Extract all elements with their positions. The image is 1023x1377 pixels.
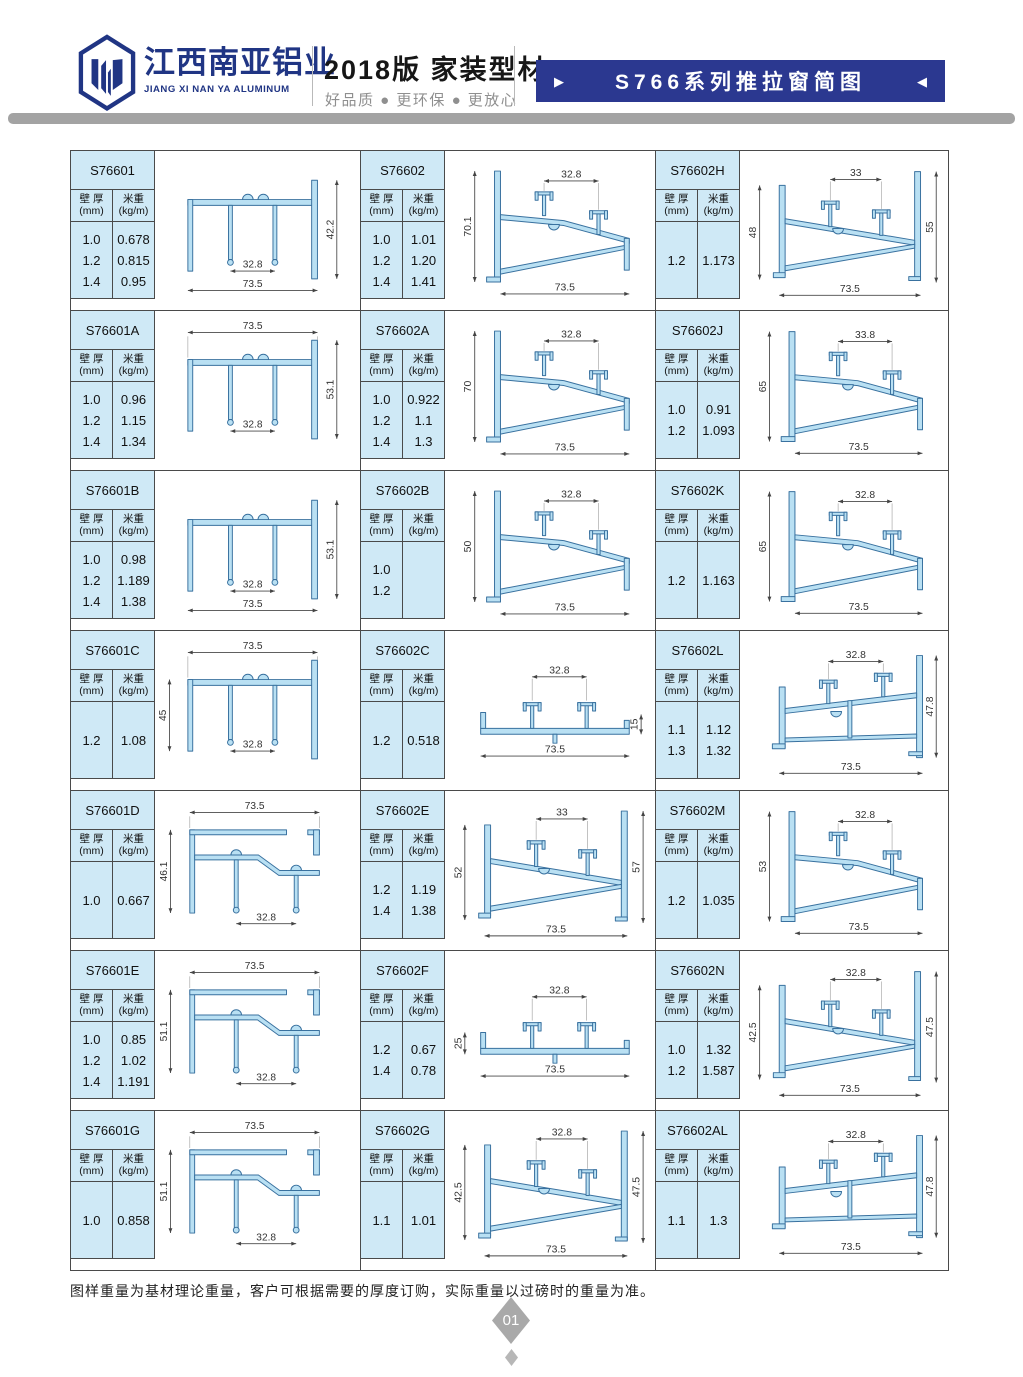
thickness-value: 1.4 (71, 271, 112, 292)
header-divider (514, 46, 515, 106)
thickness-values: 1.01.21.4 (361, 382, 402, 458)
spec-table-header: 壁 厚(mm) 米重(kg/m) (71, 190, 154, 222)
weight-value: 1.02 (113, 1050, 154, 1071)
spec-table: S76601C 壁 厚(mm) 米重(kg/m) 1.2 1.08 (71, 631, 155, 779)
thickness-values: 1.01.2 (656, 382, 697, 458)
weight-column-label: 米重(kg/m) (402, 350, 444, 381)
thickness-value: 1.2 (361, 879, 402, 900)
svg-text:73.5: 73.5 (555, 282, 575, 293)
profile-cell: S76602H 壁 厚(mm) 米重(kg/m) 1.2 1.173 33485… (656, 151, 949, 311)
svg-text:55: 55 (925, 221, 936, 233)
svg-text:32.8: 32.8 (243, 260, 263, 271)
weight-value: 1.38 (113, 591, 154, 612)
spec-table: S76602K 壁 厚(mm) 米重(kg/m) 1.2 1.163 (656, 471, 740, 619)
svg-text:73.5: 73.5 (555, 442, 575, 453)
profile-drawing: 32.87073.5 (445, 311, 655, 470)
profile-code: S76602AL (656, 1111, 739, 1150)
brand-block: 江西南亚铝业 JIANG XI NAN YA ALUMINUM (144, 47, 336, 95)
svg-text:73.5: 73.5 (245, 961, 265, 972)
svg-text:73.5: 73.5 (243, 599, 263, 610)
weight-column-label: 米重(kg/m) (697, 670, 739, 701)
weight-column-label: 米重(kg/m) (112, 990, 154, 1021)
spec-table: S76601G 壁 厚(mm) 米重(kg/m) 1.0 0.858 (71, 1111, 155, 1259)
spec-table: S76601 壁 厚(mm) 米重(kg/m) 1.01.21.4 0.6780… (71, 151, 155, 299)
thickness-value: 1.0 (361, 389, 402, 410)
thickness-value: 1.4 (71, 591, 112, 612)
spec-table-body: 1.01.21.4 0.851.021.191 (71, 1022, 154, 1098)
weight-column-label: 米重(kg/m) (697, 830, 739, 861)
thickness-value: 1.2 (71, 1050, 112, 1071)
spec-table-header: 壁 厚(mm) 米重(kg/m) (361, 350, 444, 382)
thickness-value: 1.3 (656, 740, 697, 761)
thickness-value: 1.0 (656, 399, 697, 420)
thickness-value: 1.2 (656, 250, 697, 271)
weight-values: 1.173 (697, 222, 739, 298)
svg-text:32.8: 32.8 (855, 490, 875, 501)
svg-text:53: 53 (758, 861, 769, 873)
weight-value: 0.78 (403, 1060, 444, 1081)
spec-table-body: 1.01.21.4 0.6780.8150.95 (71, 222, 154, 298)
spec-table: S76602J 壁 厚(mm) 米重(kg/m) 1.01.2 0.911.09… (656, 311, 740, 459)
spec-table-body: 1.1 1.01 (361, 1182, 444, 1258)
spec-table-body: 1.2 1.163 (656, 542, 739, 618)
thickness-column-label: 壁 厚(mm) (656, 350, 697, 381)
weight-column-label: 米重(kg/m) (112, 190, 154, 221)
svg-text:32.8: 32.8 (549, 985, 569, 996)
thickness-column-label: 壁 厚(mm) (361, 670, 402, 701)
thickness-values: 1.2 (656, 542, 697, 618)
profile-code: S76602L (656, 631, 739, 670)
svg-text:25: 25 (453, 1037, 464, 1049)
weight-value: 0.815 (113, 250, 154, 271)
thickness-value: 1.2 (71, 250, 112, 271)
profile-code: S76602K (656, 471, 739, 510)
weight-column-label: 米重(kg/m) (402, 830, 444, 861)
weight-value: 1.191 (113, 1071, 154, 1092)
profile-drawing: 73.546.132.8 (155, 791, 360, 950)
thickness-column-label: 壁 厚(mm) (361, 830, 402, 861)
spec-table-body: 1.01.2 (361, 542, 444, 618)
spec-table: S76601D 壁 厚(mm) 米重(kg/m) 1.0 0.667 (71, 791, 155, 939)
thickness-values: 1.2 (361, 702, 402, 778)
weight-value: 1.093 (698, 420, 739, 441)
profile-code: S76602C (361, 631, 444, 670)
profile-cell: S76602AL 壁 厚(mm) 米重(kg/m) 1.1 1.3 32.847… (656, 1111, 949, 1271)
spec-table: S76602H 壁 厚(mm) 米重(kg/m) 1.2 1.173 (656, 151, 740, 299)
weight-values: 0.6780.8150.95 (112, 222, 154, 298)
thickness-value: 1.2 (361, 580, 402, 601)
weight-value: 1.01 (403, 1210, 444, 1231)
svg-text:47.8: 47.8 (925, 1176, 936, 1196)
svg-text:73.5: 73.5 (849, 922, 869, 933)
weight-values: 1.035 (697, 862, 739, 938)
thickness-column-label: 壁 厚(mm) (71, 190, 112, 221)
thickness-value: 1.0 (71, 549, 112, 570)
profile-code: S76601C (71, 631, 154, 670)
spec-table-body: 1.2 1.173 (656, 222, 739, 298)
svg-text:57: 57 (632, 861, 643, 873)
thickness-value: 1.1 (361, 1210, 402, 1231)
profile-cell: S76601D 壁 厚(mm) 米重(kg/m) 1.0 0.667 73.54… (71, 791, 361, 951)
weight-value: 1.32 (698, 1039, 739, 1060)
profile-drawing: 32.842.547.573.5 (740, 951, 948, 1110)
profile-drawing: 32.873.553.1 (155, 471, 360, 630)
svg-text:46.1: 46.1 (159, 861, 170, 881)
svg-text:73.5: 73.5 (245, 1121, 265, 1132)
thickness-values: 1.01.21.4 (71, 222, 112, 298)
thickness-value: 1.0 (656, 1039, 697, 1060)
thickness-column-label: 壁 厚(mm) (656, 990, 697, 1021)
thickness-value: 1.4 (71, 1071, 112, 1092)
spec-table-header: 壁 厚(mm) 米重(kg/m) (361, 190, 444, 222)
svg-text:33.8: 33.8 (855, 330, 875, 341)
svg-text:51.1: 51.1 (159, 1021, 170, 1041)
svg-text:32.8: 32.8 (855, 810, 875, 821)
thickness-column-label: 壁 厚(mm) (71, 990, 112, 1021)
profile-drawing: 73.551.132.8 (155, 951, 360, 1110)
profile-drawing: 32.85373.5 (740, 791, 948, 950)
thickness-value: 1.4 (71, 431, 112, 452)
profile-grid: S76601 壁 厚(mm) 米重(kg/m) 1.01.21.4 0.6780… (70, 150, 949, 1271)
header-separator-bar (8, 113, 1015, 124)
thickness-values: 1.01.2 (361, 542, 402, 618)
profile-cell: S76602E 壁 厚(mm) 米重(kg/m) 1.21.4 1.191.38… (361, 791, 656, 951)
profile-drawing: 32.85073.5 (445, 471, 655, 630)
profile-cell: S76601G 壁 厚(mm) 米重(kg/m) 1.0 0.858 73.55… (71, 1111, 361, 1271)
spec-table-header: 壁 厚(mm) 米重(kg/m) (656, 670, 739, 702)
spec-table-header: 壁 厚(mm) 米重(kg/m) (71, 830, 154, 862)
thickness-values: 1.1 (656, 1182, 697, 1258)
svg-text:73.5: 73.5 (546, 924, 566, 935)
thickness-value: 1.2 (71, 410, 112, 431)
svg-text:32.8: 32.8 (256, 912, 276, 923)
thickness-column-label: 壁 厚(mm) (71, 1150, 112, 1181)
profile-code: S76601B (71, 471, 154, 510)
thickness-value: 1.2 (71, 570, 112, 591)
weight-value (403, 559, 444, 580)
profile-drawing: 32.82573.5 (445, 951, 655, 1110)
svg-text:73.5: 73.5 (545, 1065, 565, 1076)
spec-table-body: 1.01.21.4 0.9221.11.3 (361, 382, 444, 458)
svg-text:73.5: 73.5 (546, 1244, 566, 1255)
spec-table-body: 1.21.4 1.191.38 (361, 862, 444, 938)
thickness-values: 1.0 (71, 862, 112, 938)
svg-text:73.5: 73.5 (841, 1242, 861, 1253)
spec-table: S76602L 壁 厚(mm) 米重(kg/m) 1.11.3 1.121.32 (656, 631, 740, 779)
thickness-value: 1.2 (656, 420, 697, 441)
spec-table: S76602M 壁 厚(mm) 米重(kg/m) 1.2 1.035 (656, 791, 740, 939)
svg-text:48: 48 (748, 226, 759, 238)
profile-cell: S76602C 壁 厚(mm) 米重(kg/m) 1.2 0.518 32.81… (361, 631, 656, 791)
profile-code: S76602H (656, 151, 739, 190)
series-banner: ▶ S766系列推拉窗简图 ◀ (536, 60, 945, 102)
weight-column-label: 米重(kg/m) (697, 350, 739, 381)
svg-text:45: 45 (158, 709, 169, 721)
spec-table: S76602 壁 厚(mm) 米重(kg/m) 1.01.21.4 1.011.… (361, 151, 445, 299)
thickness-value: 1.2 (361, 250, 402, 271)
thickness-column-label: 壁 厚(mm) (656, 510, 697, 541)
thickness-value: 1.2 (71, 730, 112, 751)
brand-name-en: JIANG XI NAN YA ALUMINUM (144, 84, 336, 95)
weight-column-label: 米重(kg/m) (402, 1150, 444, 1181)
profile-drawing: 32.81573.5 (445, 631, 655, 790)
spec-table: S76602B 壁 厚(mm) 米重(kg/m) 1.01.2 (361, 471, 445, 619)
spec-table: S76601B 壁 厚(mm) 米重(kg/m) 1.01.21.4 0.981… (71, 471, 155, 619)
svg-text:73.5: 73.5 (545, 745, 565, 756)
profile-cell: S76601B 壁 厚(mm) 米重(kg/m) 1.01.21.4 0.981… (71, 471, 361, 631)
weight-values: 0.667 (112, 862, 154, 938)
weight-value: 1.189 (113, 570, 154, 591)
thickness-column-label: 壁 厚(mm) (71, 830, 112, 861)
weight-value: 1.20 (403, 250, 444, 271)
profile-cell: S76602B 壁 厚(mm) 米重(kg/m) 1.01.2 32.85073… (361, 471, 656, 631)
spec-table-body: 1.1 1.3 (656, 1182, 739, 1258)
profile-cell: S76601E 壁 厚(mm) 米重(kg/m) 1.01.21.4 0.851… (71, 951, 361, 1111)
thickness-value: 1.0 (361, 559, 402, 580)
banner-left-arrow-icon: ▶ (554, 75, 564, 88)
thickness-values: 1.2 (71, 702, 112, 778)
thickness-value: 1.4 (361, 900, 402, 921)
spec-table-header: 壁 厚(mm) 米重(kg/m) (71, 990, 154, 1022)
thickness-value: 1.0 (71, 890, 112, 911)
thickness-column-label: 壁 厚(mm) (71, 350, 112, 381)
svg-text:32.8: 32.8 (846, 1130, 866, 1141)
profile-cell: S76602K 壁 厚(mm) 米重(kg/m) 1.2 1.163 32.86… (656, 471, 949, 631)
weight-column-label: 米重(kg/m) (697, 190, 739, 221)
spec-table-body: 1.01.21.4 0.981.1891.38 (71, 542, 154, 618)
logo-hexagon-icon (78, 34, 136, 111)
profile-code: S76601 (71, 151, 154, 190)
weight-value: 1.32 (698, 740, 739, 761)
weight-value: 0.667 (113, 890, 154, 911)
brand-name-cn: 江西南亚铝业 (144, 47, 336, 78)
weight-value: 0.922 (403, 389, 444, 410)
profile-cell: S76602F 壁 厚(mm) 米重(kg/m) 1.21.4 0.670.78… (361, 951, 656, 1111)
profile-code: S76602N (656, 951, 739, 990)
svg-text:70.1: 70.1 (463, 216, 474, 236)
spec-table-body: 1.11.3 1.121.32 (656, 702, 739, 778)
spec-table-header: 壁 厚(mm) 米重(kg/m) (71, 510, 154, 542)
weight-values: 0.961.151.34 (112, 382, 154, 458)
page-number-ornament (505, 1349, 518, 1366)
profile-cell: S76602A 壁 厚(mm) 米重(kg/m) 1.01.21.4 0.922… (361, 311, 656, 471)
thickness-column-label: 壁 厚(mm) (656, 670, 697, 701)
profile-cell: S76602J 壁 厚(mm) 米重(kg/m) 1.01.2 0.911.09… (656, 311, 949, 471)
profile-code: S76602J (656, 311, 739, 350)
thickness-values: 1.0 (71, 1182, 112, 1258)
svg-text:73.5: 73.5 (840, 284, 860, 295)
weight-value: 1.41 (403, 271, 444, 292)
profile-cell: S76602L 壁 厚(mm) 米重(kg/m) 1.11.3 1.121.32… (656, 631, 949, 791)
spec-table-body: 1.2 0.518 (361, 702, 444, 778)
spec-table-header: 壁 厚(mm) 米重(kg/m) (656, 990, 739, 1022)
spec-table-body: 1.01.2 1.321.587 (656, 1022, 739, 1098)
thickness-column-label: 壁 厚(mm) (656, 1150, 697, 1181)
weight-column-label: 米重(kg/m) (112, 350, 154, 381)
svg-text:52: 52 (453, 866, 464, 878)
thickness-value: 1.4 (361, 271, 402, 292)
weight-values: 1.011.201.41 (402, 222, 444, 298)
series-title: S766系列推拉窗简图 (615, 66, 866, 96)
weight-value: 1.38 (403, 900, 444, 921)
svg-text:47.5: 47.5 (632, 1177, 643, 1197)
svg-text:47.5: 47.5 (925, 1017, 936, 1037)
profile-code: S76601G (71, 1111, 154, 1150)
svg-text:32.8: 32.8 (561, 170, 581, 181)
weight-value: 0.678 (113, 229, 154, 250)
thickness-column-label: 壁 厚(mm) (656, 190, 697, 221)
svg-text:42.2: 42.2 (325, 219, 336, 239)
weight-values: 1.3 (697, 1182, 739, 1258)
profile-code: S76601D (71, 791, 154, 830)
svg-text:73.5: 73.5 (849, 442, 869, 453)
thickness-values: 1.1 (361, 1182, 402, 1258)
svg-text:32.8: 32.8 (846, 650, 866, 661)
spec-table-body: 1.21.4 0.670.78 (361, 1022, 444, 1098)
weight-value: 1.12 (698, 719, 739, 740)
weight-value: 1.19 (403, 879, 444, 900)
weight-value: 0.518 (403, 730, 444, 751)
weight-value: 1.035 (698, 890, 739, 911)
svg-text:53.1: 53.1 (325, 539, 336, 559)
weight-value: 0.91 (698, 399, 739, 420)
profile-cell: S76601 壁 厚(mm) 米重(kg/m) 1.01.21.4 0.6780… (71, 151, 361, 311)
profile-code: S76601E (71, 951, 154, 990)
thickness-values: 1.01.21.4 (71, 382, 112, 458)
spec-table-header: 壁 厚(mm) 米重(kg/m) (656, 1150, 739, 1182)
profile-drawing: 33.86573.5 (740, 311, 948, 470)
svg-text:47.8: 47.8 (925, 696, 936, 716)
spec-table: S76602A 壁 厚(mm) 米重(kg/m) 1.01.21.4 0.922… (361, 311, 445, 459)
spec-table-header: 壁 厚(mm) 米重(kg/m) (71, 670, 154, 702)
weight-values: 0.670.78 (402, 1022, 444, 1098)
thickness-values: 1.01.21.4 (361, 222, 402, 298)
spec-table-body: 1.2 1.08 (71, 702, 154, 778)
thickness-value: 1.2 (361, 1039, 402, 1060)
thickness-value: 1.1 (656, 1210, 697, 1231)
thickness-values: 1.01.21.4 (71, 542, 112, 618)
spec-table: S76602F 壁 厚(mm) 米重(kg/m) 1.21.4 0.670.78 (361, 951, 445, 1099)
thickness-values: 1.21.4 (361, 1022, 402, 1098)
weight-column-label: 米重(kg/m) (112, 510, 154, 541)
weight-value: 0.96 (113, 389, 154, 410)
spec-table-body: 1.0 0.667 (71, 862, 154, 938)
svg-text:51.1: 51.1 (159, 1181, 170, 1201)
weight-value: 1.3 (403, 431, 444, 452)
spec-table-header: 壁 厚(mm) 米重(kg/m) (361, 510, 444, 542)
svg-text:42.5: 42.5 (748, 1022, 759, 1042)
weight-value: 1.173 (698, 250, 739, 271)
thickness-value: 1.2 (656, 890, 697, 911)
profile-code: S76601A (71, 311, 154, 350)
profile-drawing: 32.842.547.573.5 (445, 1111, 655, 1270)
thickness-values: 1.2 (656, 222, 697, 298)
svg-text:32.8: 32.8 (243, 580, 263, 591)
profile-drawing: 32.847.873.5 (740, 631, 948, 790)
svg-text:32.8: 32.8 (256, 1232, 276, 1243)
weight-value: 0.98 (113, 549, 154, 570)
thickness-value: 1.4 (361, 1060, 402, 1081)
thickness-column-label: 壁 厚(mm) (361, 510, 402, 541)
spec-table-header: 壁 厚(mm) 米重(kg/m) (361, 670, 444, 702)
weight-column-label: 米重(kg/m) (112, 670, 154, 701)
spec-table-header: 壁 厚(mm) 米重(kg/m) (656, 350, 739, 382)
thickness-value: 1.2 (361, 730, 402, 751)
spec-table: S76602C 壁 厚(mm) 米重(kg/m) 1.2 0.518 (361, 631, 445, 779)
thickness-value: 1.2 (361, 410, 402, 431)
spec-table: S76602AL 壁 厚(mm) 米重(kg/m) 1.1 1.3 (656, 1111, 740, 1259)
weight-values: 1.321.587 (697, 1022, 739, 1098)
thickness-column-label: 壁 厚(mm) (656, 830, 697, 861)
weight-values: 1.191.38 (402, 862, 444, 938)
svg-text:32.8: 32.8 (846, 968, 866, 979)
weight-values: 0.851.021.191 (112, 1022, 154, 1098)
profile-code: S76602F (361, 951, 444, 990)
thickness-column-label: 壁 厚(mm) (71, 510, 112, 541)
weight-column-label: 米重(kg/m) (697, 990, 739, 1021)
profile-code: S76602A (361, 311, 444, 350)
spec-table-header: 壁 厚(mm) 米重(kg/m) (656, 510, 739, 542)
thickness-value: 1.2 (656, 1060, 697, 1081)
svg-text:32.8: 32.8 (552, 1128, 572, 1139)
footer-note: 图样重量为基材理论重量，客户可根据需要的厚度订购，实际重量以过磅时的重量为准。 (70, 1281, 655, 1301)
thickness-values: 1.01.21.4 (71, 1022, 112, 1098)
thickness-value: 1.0 (71, 389, 112, 410)
svg-text:33: 33 (556, 808, 568, 819)
profile-drawing: 33485573.5 (740, 151, 948, 310)
svg-text:33: 33 (850, 168, 862, 179)
spec-table-header: 壁 厚(mm) 米重(kg/m) (71, 350, 154, 382)
weight-values: 1.08 (112, 702, 154, 778)
svg-text:32.8: 32.8 (561, 490, 581, 501)
thickness-value: 1.0 (71, 229, 112, 250)
weight-value: 0.95 (113, 271, 154, 292)
svg-text:70: 70 (463, 381, 474, 393)
weight-values: 0.981.1891.38 (112, 542, 154, 618)
spec-table-header: 壁 厚(mm) 米重(kg/m) (361, 1150, 444, 1182)
spec-table-header: 壁 厚(mm) 米重(kg/m) (656, 190, 739, 222)
thickness-value: 1.0 (71, 1029, 112, 1050)
thickness-column-label: 壁 厚(mm) (361, 350, 402, 381)
spec-table-body: 1.0 0.858 (71, 1182, 154, 1258)
spec-table-body: 1.01.21.4 1.011.201.41 (361, 222, 444, 298)
weight-value (403, 580, 444, 601)
spec-table-body: 1.01.21.4 0.961.151.34 (71, 382, 154, 458)
thickness-value: 1.4 (361, 431, 402, 452)
company-logo (78, 34, 136, 112)
profile-cell: S76602M 壁 厚(mm) 米重(kg/m) 1.2 1.035 32.85… (656, 791, 949, 951)
thickness-values: 1.11.3 (656, 702, 697, 778)
profile-cell: S76601A 壁 厚(mm) 米重(kg/m) 1.01.21.4 0.961… (71, 311, 361, 471)
weight-value: 1.587 (698, 1060, 739, 1081)
profile-cell: S76602N 壁 厚(mm) 米重(kg/m) 1.01.2 1.321.58… (656, 951, 949, 1111)
profile-code: S76602 (361, 151, 444, 190)
weight-column-label: 米重(kg/m) (697, 1150, 739, 1181)
profile-drawing: 73.532.853.1 (155, 311, 360, 470)
weight-value: 0.67 (403, 1039, 444, 1060)
thickness-value: 1.0 (361, 229, 402, 250)
svg-text:32.8: 32.8 (243, 740, 263, 751)
weight-value: 1.1 (403, 410, 444, 431)
weight-value: 1.08 (113, 730, 154, 751)
profile-drawing: 33525773.5 (445, 791, 655, 950)
svg-text:73.5: 73.5 (840, 1084, 860, 1095)
header-divider (312, 46, 313, 106)
spec-table: S76602E 壁 厚(mm) 米重(kg/m) 1.21.4 1.191.38 (361, 791, 445, 939)
thickness-column-label: 壁 厚(mm) (71, 670, 112, 701)
slogan-text: 好品质 ● 更环保 ● 更放心 (325, 89, 517, 110)
spec-table: S76602N 壁 厚(mm) 米重(kg/m) 1.01.2 1.321.58… (656, 951, 740, 1099)
